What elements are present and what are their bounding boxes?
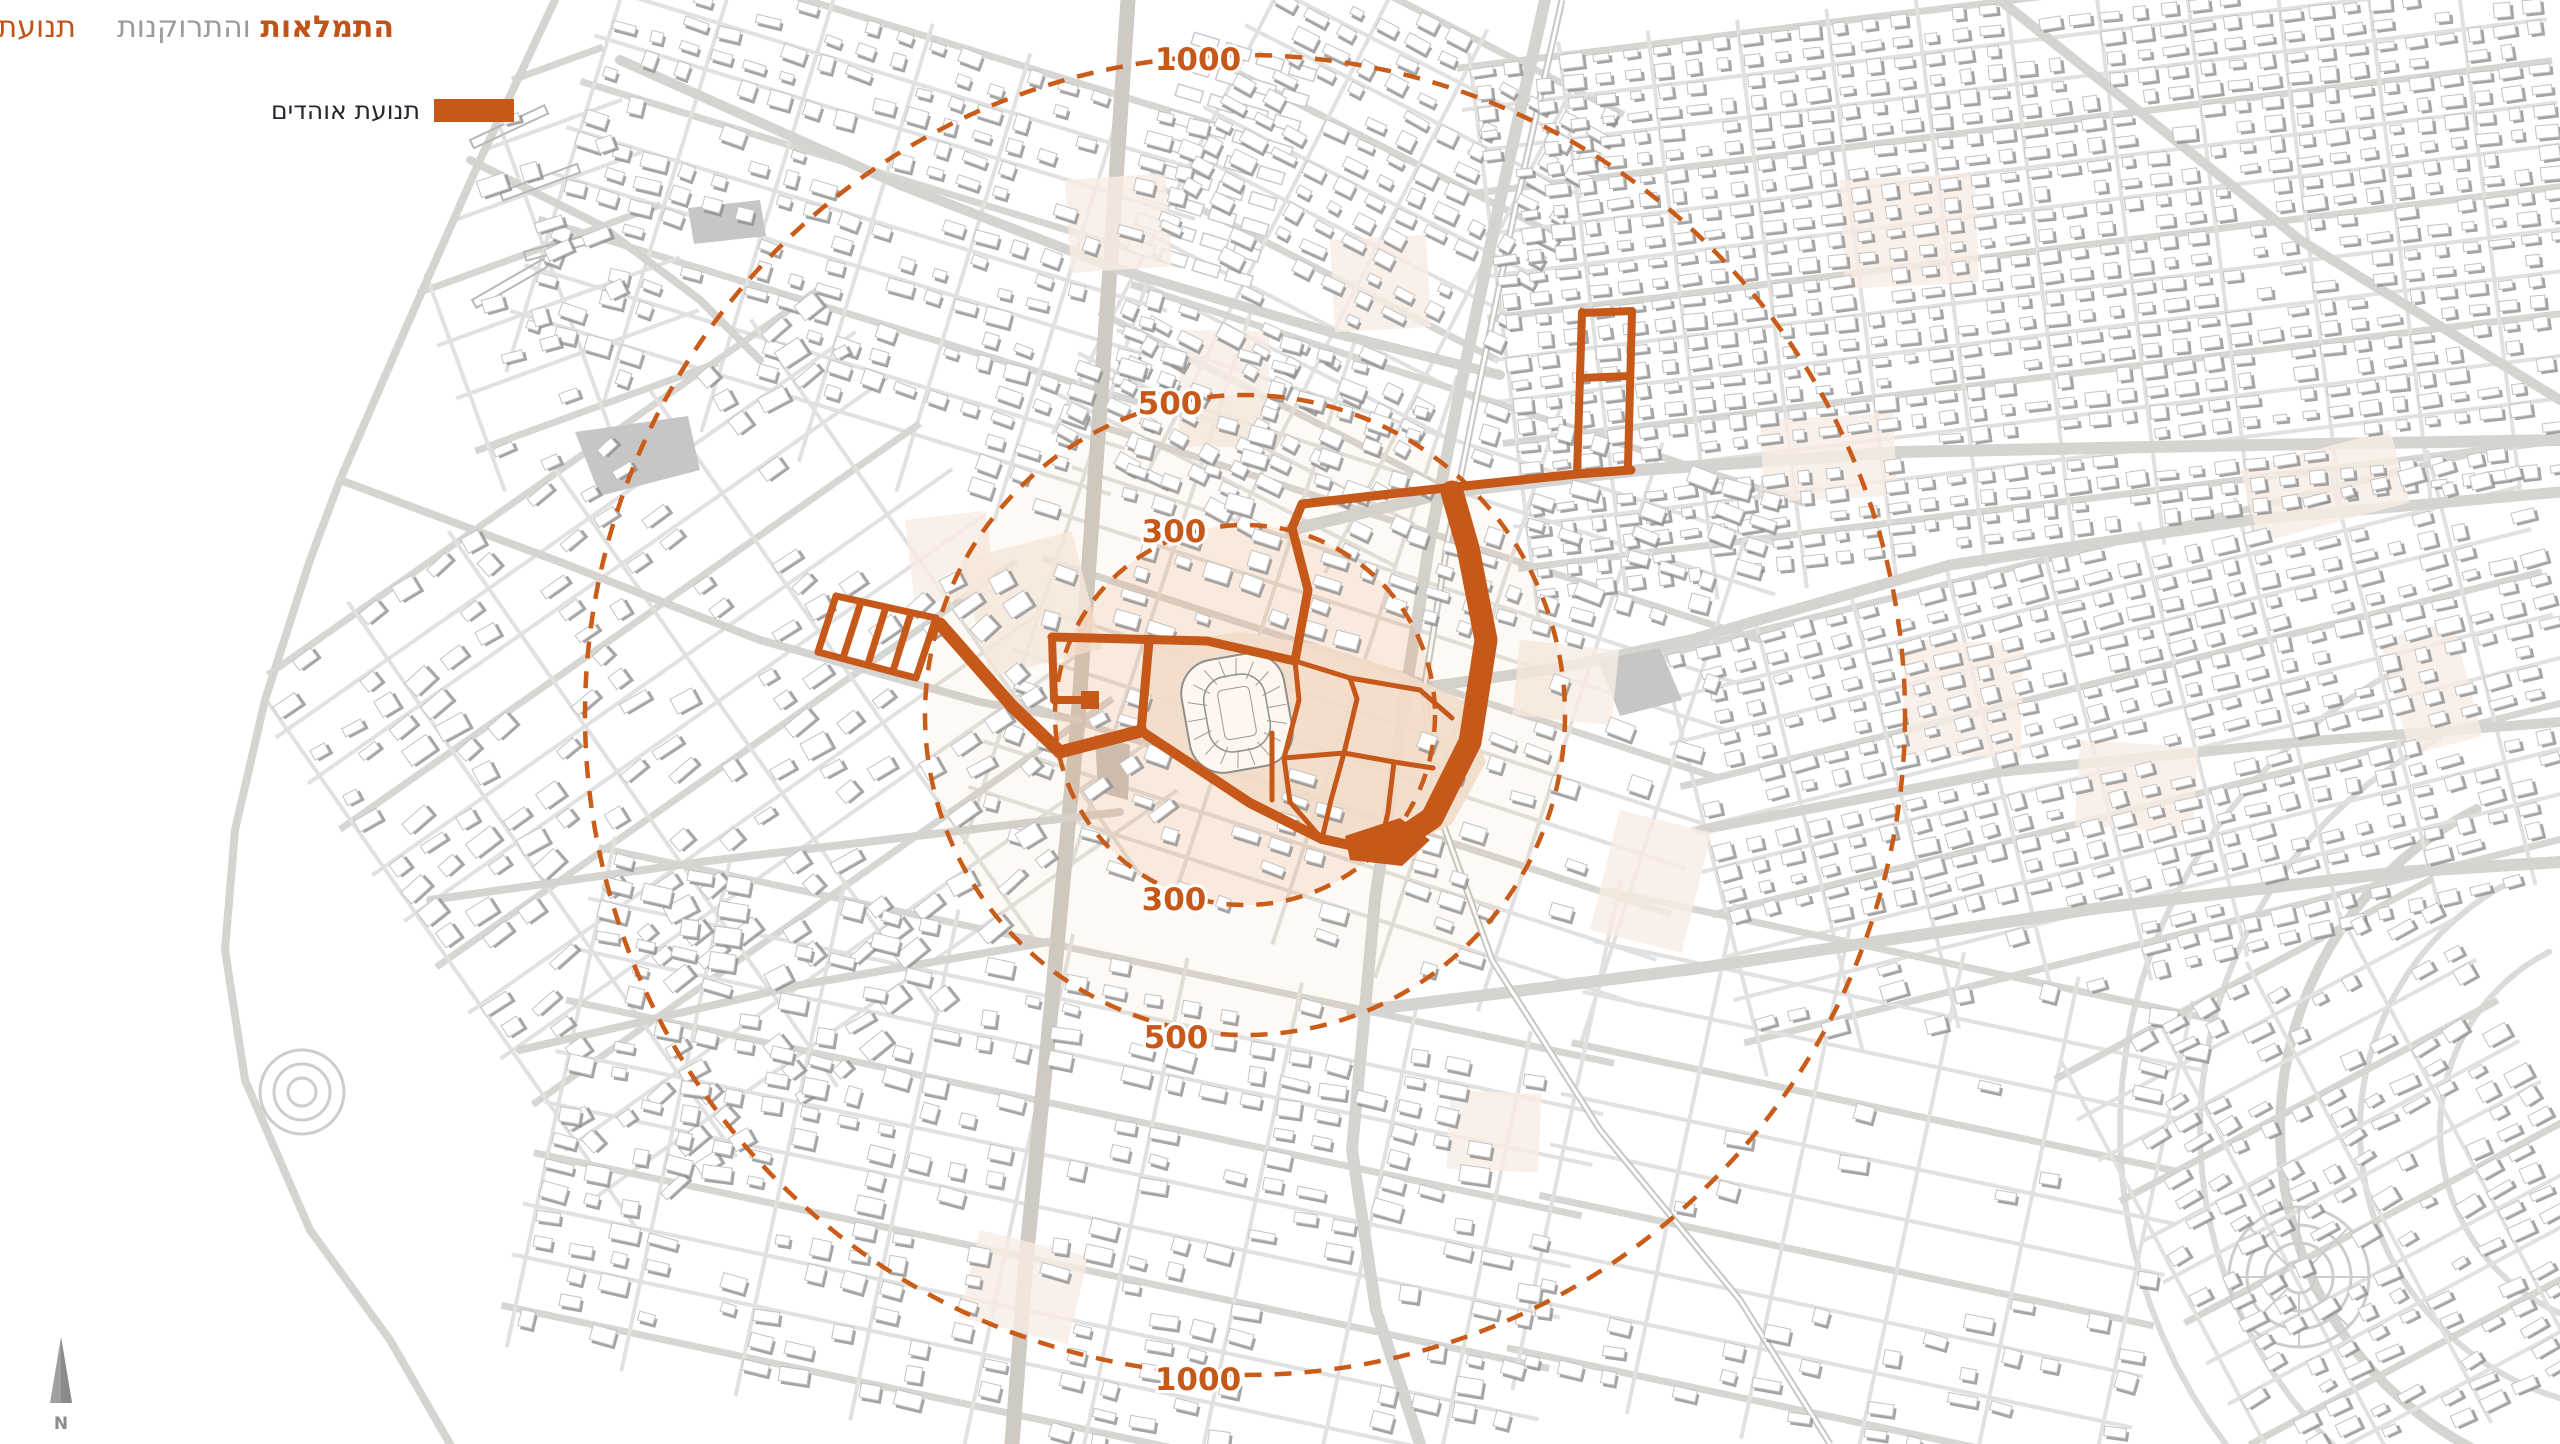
north-label: N (54, 1414, 68, 1434)
fan-route-left-vert (1052, 637, 1054, 700)
legend-label-fan-movement: תנועת אוהדים (271, 96, 420, 125)
ring-distance-label: 1000 (1155, 42, 1241, 78)
north-arrow: N (50, 1337, 72, 1434)
poster-stage: 10005003003005001000 N התמלאות והתרוקנות… (0, 0, 2560, 1444)
legend-swatch-fan-movement (434, 99, 514, 122)
map-title: התמלאות והתרוקנות תנועת אוהדים (14, 10, 394, 46)
fan-route-node (1081, 691, 1099, 709)
title-rest: והתרוקנות (117, 10, 251, 45)
fan-route-ladder-top (1582, 311, 1632, 313)
legend: תנועת אוהדים (268, 96, 514, 125)
title-emphasis: התמלאות (260, 10, 394, 45)
ring-distance-label: 1000 (1155, 1362, 1241, 1398)
ring-distance-label: 300 (1142, 514, 1207, 550)
fan-route-ladder-mid (1580, 376, 1630, 378)
ring-distance-label: 500 (1138, 386, 1203, 422)
fan-route-ladder-left (1577, 312, 1582, 474)
fan-route-ladder-right (1628, 311, 1632, 466)
ring-distance-label: 500 (1144, 1020, 1209, 1056)
title-subject: תנועת אוהדים (0, 10, 76, 45)
city-map: 10005003003005001000 N (0, 0, 2560, 1444)
ring-distance-label: 300 (1142, 882, 1207, 918)
map-generated-layers (225, 0, 2560, 1444)
north-arrow-shade (61, 1337, 72, 1403)
